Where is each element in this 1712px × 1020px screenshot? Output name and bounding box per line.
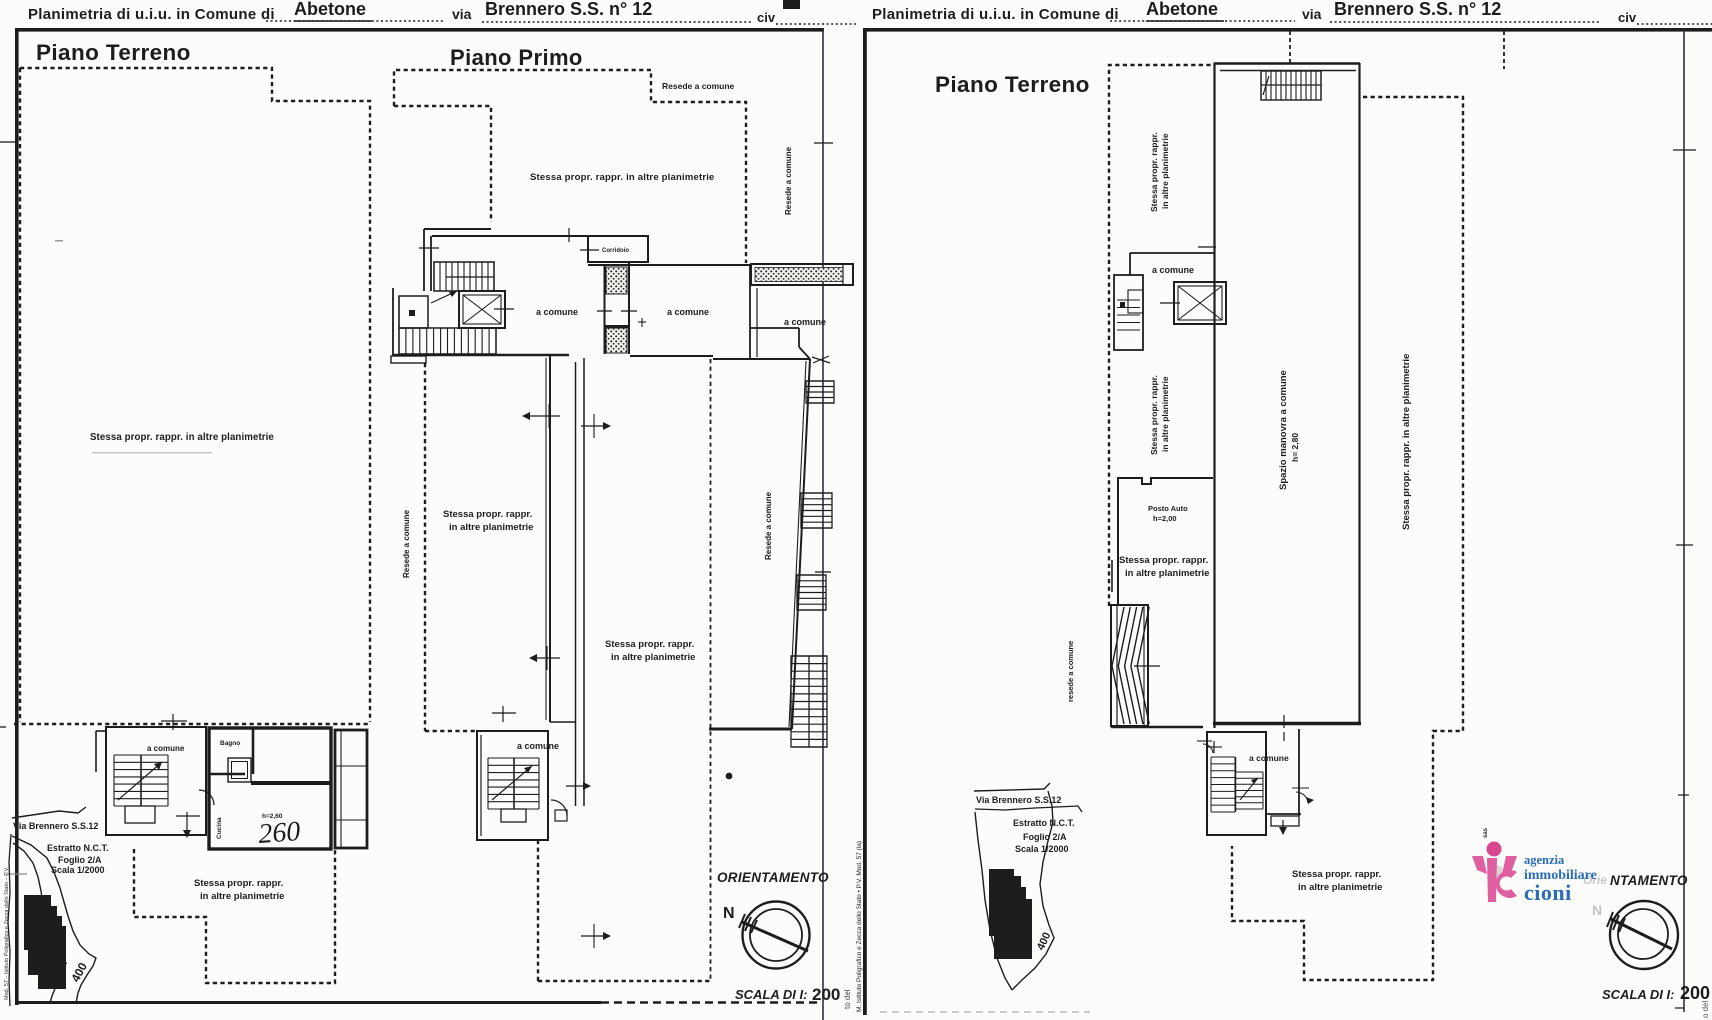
svg-text:SCALA DI I:: SCALA DI I: bbox=[1602, 987, 1674, 1002]
svg-text:Resede a comune: Resede a comune bbox=[764, 491, 773, 560]
svg-text:o del: o del bbox=[1701, 1000, 1710, 1018]
svg-text:civ: civ bbox=[757, 10, 776, 25]
svg-text:in altre planimetrie: in altre planimetrie bbox=[1125, 568, 1209, 579]
svg-text:Brennero S.S. n° 12: Brennero S.S. n° 12 bbox=[485, 0, 652, 19]
svg-text:Planimetria di u.i.u. in C: Planimetria di u.i.u. in Comune di bbox=[28, 6, 275, 23]
svg-text:Stessa propr. rappr.: Stessa propr. rappr. bbox=[194, 878, 283, 889]
svg-text:Planimetria di u.i.u. in C: Planimetria di u.i.u. in Comune di bbox=[872, 6, 1119, 23]
svg-text:Piano Terreno: Piano Terreno bbox=[36, 40, 191, 65]
svg-text:Piano Terreno: Piano Terreno bbox=[935, 72, 1090, 97]
svg-text:in altre planimetrie: in altre planimetrie bbox=[200, 891, 284, 902]
svg-text:Spazio manovra a comune: Spazio manovra a comune bbox=[1278, 370, 1289, 490]
svg-text:N: N bbox=[723, 905, 735, 922]
svg-text:N: N bbox=[1592, 902, 1602, 918]
svg-text:Cucina: Cucina bbox=[216, 817, 223, 839]
svg-text:in altre planimetrie: in altre planimetrie bbox=[1160, 376, 1170, 452]
svg-text:via: via bbox=[452, 6, 472, 22]
svg-text:Corridoio: Corridoio bbox=[602, 248, 629, 254]
svg-text:Foglio 2/A: Foglio 2/A bbox=[1023, 832, 1067, 842]
svg-text:Piano Primo: Piano Primo bbox=[450, 45, 583, 70]
svg-text:Stessa propr. rappr.: Stessa propr. rappr. bbox=[1149, 132, 1159, 212]
svg-text:Via Brennero S.S.12: Via Brennero S.S.12 bbox=[13, 821, 98, 831]
svg-text:a comune: a comune bbox=[536, 307, 578, 317]
svg-text:SCALA DI I:: SCALA DI I: bbox=[735, 987, 807, 1002]
svg-text:in altre planimetrie: in altre planimetrie bbox=[449, 522, 533, 533]
svg-text:Resede a comune: Resede a comune bbox=[402, 509, 411, 578]
svg-text:Posto Auto: Posto Auto bbox=[1148, 504, 1188, 513]
svg-text:NTAMENTO: NTAMENTO bbox=[1610, 873, 1688, 888]
svg-text:a comune: a comune bbox=[784, 317, 826, 327]
svg-text:Stessa propr. rappr. in altre: Stessa propr. rappr. in altre planimetri… bbox=[1401, 354, 1412, 530]
svg-text:Stessa propr. rappr. in altre: Stessa propr. rappr. in altre planimetri… bbox=[90, 432, 274, 443]
svg-text:a comune: a comune bbox=[147, 744, 185, 753]
svg-text:Estratto N.C.T.: Estratto N.C.T. bbox=[1013, 818, 1075, 828]
svg-text:civ: civ bbox=[1618, 10, 1637, 25]
svg-text:Stessa propr. rappr.: Stessa propr. rappr. bbox=[443, 509, 532, 520]
svg-text:200: 200 bbox=[1680, 983, 1710, 1003]
svg-text:via: via bbox=[1302, 6, 1322, 22]
svg-text:Stessa propr. rappr.: Stessa propr. rappr. bbox=[1292, 869, 1381, 880]
svg-text:Stessa propr. rappr.: Stessa propr. rappr. bbox=[605, 639, 694, 650]
svg-text:sas: sas bbox=[1483, 827, 1489, 838]
svg-text:Abetone: Abetone bbox=[294, 0, 366, 19]
svg-text:a comune: a comune bbox=[517, 741, 559, 751]
svg-text:Bagno: Bagno bbox=[220, 740, 240, 747]
svg-text:in altre planimetrie: in altre planimetrie bbox=[1298, 882, 1382, 893]
svg-text:Scala 1/2000: Scala 1/2000 bbox=[1015, 844, 1069, 854]
svg-text:Stessa propr. rappr. in altre: Stessa propr. rappr. in altre planimetri… bbox=[530, 172, 715, 183]
svg-text:agenzia: agenzia bbox=[1524, 853, 1565, 867]
svg-text:260: 260 bbox=[257, 816, 301, 850]
svg-text:Scala 1/2000: Scala 1/2000 bbox=[51, 865, 105, 875]
svg-text:in altre planimetrie: in altre planimetrie bbox=[1160, 133, 1170, 209]
svg-text:Stessa propr. rappr.: Stessa propr. rappr. bbox=[1149, 375, 1159, 455]
svg-text:Foglio 2/A: Foglio 2/A bbox=[58, 855, 102, 865]
svg-text:a comune: a comune bbox=[1249, 753, 1289, 763]
svg-text:a comune: a comune bbox=[1152, 265, 1194, 275]
svg-text:h=2,00: h=2,00 bbox=[1153, 514, 1177, 523]
svg-text:to del: to del bbox=[843, 989, 852, 1009]
svg-text:Resede a comune: Resede a comune bbox=[784, 146, 793, 215]
svg-text:h= 2,80: h= 2,80 bbox=[1290, 433, 1300, 462]
svg-text:200: 200 bbox=[812, 985, 840, 1004]
svg-text:Resede a comune: Resede a comune bbox=[662, 81, 735, 91]
svg-text:ORIENTAMENTO: ORIENTAMENTO bbox=[717, 870, 829, 885]
svg-text:Via Brennero S.S.12: Via Brennero S.S.12 bbox=[976, 795, 1061, 805]
svg-text:resede a comune: resede a comune bbox=[1066, 641, 1075, 702]
svg-text:M. Istituto Poligrafico e Z: M. Istituto Poligrafico e Zecca dello St… bbox=[856, 841, 863, 1012]
svg-text:Abetone: Abetone bbox=[1146, 0, 1218, 19]
svg-text:Estratto N.C.T.: Estratto N.C.T. bbox=[47, 843, 109, 853]
svg-text:in altre planimetrie: in altre planimetrie bbox=[611, 652, 695, 663]
svg-text:a comune: a comune bbox=[667, 307, 709, 317]
svg-text:Stessa propr. rappr.: Stessa propr. rappr. bbox=[1119, 555, 1208, 566]
svg-text:cioni: cioni bbox=[1524, 880, 1572, 905]
svg-text:Brennero S.S. n° 12: Brennero S.S. n° 12 bbox=[1334, 0, 1501, 19]
